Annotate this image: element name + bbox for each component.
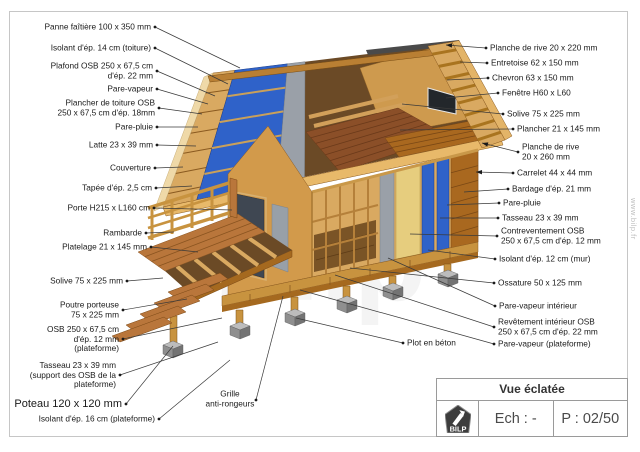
leader-isolant-plateforme [159,360,230,419]
drawing-title: Vue éclatée [437,379,627,401]
wall-osb-strip [396,165,420,259]
wall-insulation-panel-1 [422,161,434,254]
drawing-page: bilp [0,0,640,452]
scale-cell: Ech : - [478,401,553,437]
logo-cell: BILP [437,401,478,437]
wall-insulation-panel-2 [437,157,449,251]
leader-panne-faitiere [155,27,240,68]
leader-solive-terrasse [127,278,163,281]
svg-text:BILP: BILP [449,425,466,433]
bilp-logo: BILP [445,405,471,433]
leader-poteau [126,346,173,404]
site-watermark: www.bilp.fr [629,198,638,240]
title-block: Vue éclatée BILP Ech : - P : 02/50 [436,378,628,437]
page-number-cell: P : 02/50 [553,401,628,437]
wall-vapour-barrier-strip [380,171,394,263]
leader-isolant-toiture [155,48,228,84]
